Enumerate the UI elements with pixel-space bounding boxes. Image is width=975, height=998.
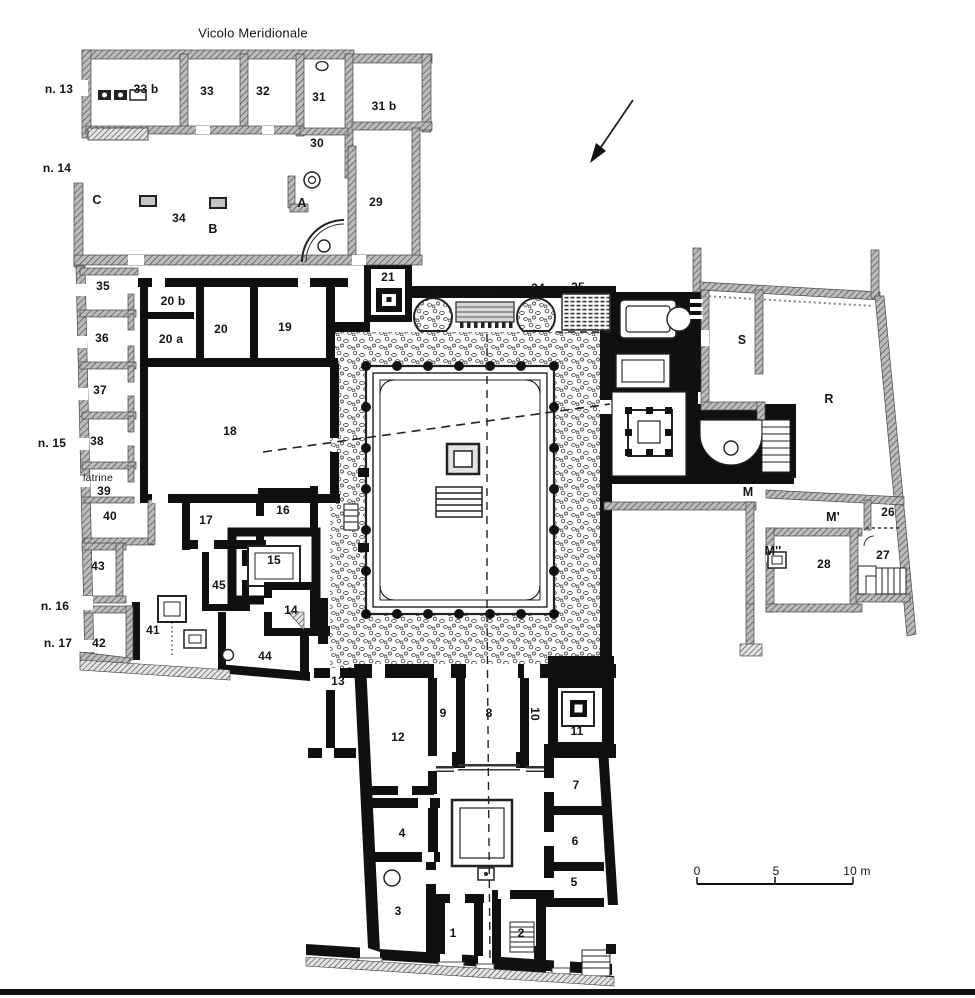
mosaic-25 <box>562 294 610 330</box>
niche-28 <box>768 552 786 568</box>
bath-stairs <box>762 420 790 472</box>
room-21-basin <box>371 269 405 315</box>
walkway-ladder <box>344 504 358 530</box>
portico-fringe <box>88 128 148 140</box>
room-14-frame <box>268 586 314 632</box>
hearth-room-3 <box>384 870 400 886</box>
fountain-24 <box>517 298 555 331</box>
stairs-27 <box>858 566 906 594</box>
room-11-shrine <box>558 688 602 742</box>
garden-stair-feature <box>436 487 482 517</box>
scan-border <box>0 989 975 995</box>
floor-plan-figure: Vicolo Meridionalen. 13n. 14n. 15n. 16n.… <box>0 0 975 998</box>
floor-plan-drawing <box>0 0 975 998</box>
fountain-22 <box>414 298 452 331</box>
stairs-2 <box>510 922 534 952</box>
